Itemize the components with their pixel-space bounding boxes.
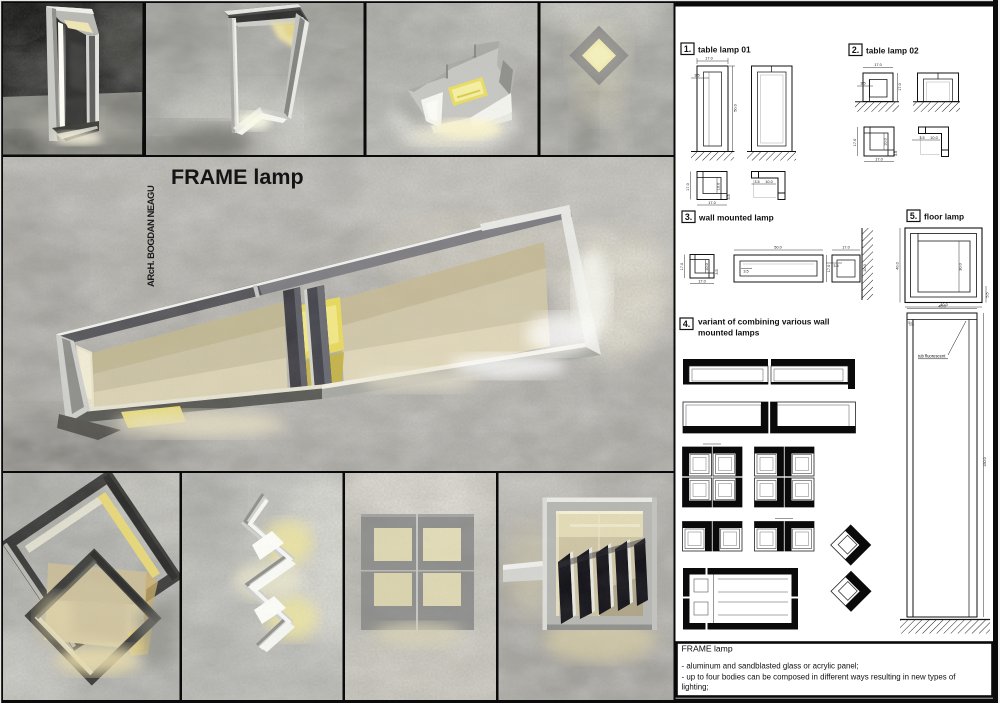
svg-text:3.5: 3.5 <box>754 180 759 184</box>
svg-text:FRAME lamp: FRAME lamp <box>171 165 304 189</box>
svg-text:10.0: 10.0 <box>765 180 772 184</box>
svg-text:10.0: 10.0 <box>884 138 888 145</box>
svg-text:5.: 5. <box>910 211 917 221</box>
svg-text:5.5: 5.5 <box>986 292 990 297</box>
svg-text:10.0: 10.0 <box>705 263 709 270</box>
svg-text:30.0: 30.0 <box>959 263 963 270</box>
svg-text:17.0: 17.0 <box>898 83 902 90</box>
svg-text:table lamp 01: table lamp 01 <box>698 44 751 54</box>
svg-text:3.5: 3.5 <box>833 264 838 268</box>
svg-text:floor lamp: floor lamp <box>924 211 964 221</box>
svg-text:17.0: 17.0 <box>698 280 705 284</box>
svg-text:mounted lamps: mounted lamps <box>698 328 760 338</box>
svg-text:ARcH. BOGDAN NEAGU: ARcH. BOGDAN NEAGU <box>146 185 157 287</box>
svg-text:3.5: 3.5 <box>727 194 731 199</box>
svg-text:50.0: 50.0 <box>774 246 781 250</box>
svg-text:3.: 3. <box>685 212 692 222</box>
svg-text:4.: 4. <box>683 319 690 329</box>
svg-text:50.0: 50.0 <box>734 104 738 111</box>
svg-text:17.0: 17.0 <box>827 265 831 272</box>
svg-text:3.5: 3.5 <box>694 74 699 78</box>
svg-text:3.5: 3.5 <box>919 136 924 140</box>
svg-text:10.0: 10.0 <box>930 136 937 140</box>
svg-text:2.: 2. <box>852 45 859 55</box>
svg-text:wall mounted lamp: wall mounted lamp <box>698 212 774 222</box>
svg-text:17.0: 17.0 <box>708 201 715 205</box>
svg-text:1.: 1. <box>684 44 691 54</box>
svg-text:17.0: 17.0 <box>705 57 712 61</box>
svg-text:17.0: 17.0 <box>853 139 857 146</box>
svg-text:40.0: 40.0 <box>896 262 900 269</box>
svg-text:table lamp 02: table lamp 02 <box>866 45 919 55</box>
svg-text:3.5: 3.5 <box>860 82 865 86</box>
svg-text:FRAME lamp: FRAME lamp <box>682 644 733 654</box>
svg-text:- up to four bodies can be com: - up to four bodies can be composed in d… <box>682 673 957 682</box>
svg-text:17.0: 17.0 <box>874 63 881 67</box>
svg-text:17.0: 17.0 <box>686 183 690 190</box>
svg-text:150.0: 150.0 <box>983 457 987 467</box>
svg-text:40.0: 40.0 <box>938 305 945 309</box>
svg-text:variant of combining various w: variant of combining various wall <box>698 317 829 327</box>
svg-text:17.0: 17.0 <box>680 263 684 270</box>
svg-text:3.5: 3.5 <box>715 269 719 274</box>
svg-text:5.0: 5.0 <box>908 321 913 325</box>
svg-text:3.5: 3.5 <box>743 270 748 274</box>
svg-text:3.5: 3.5 <box>894 151 898 156</box>
svg-text:tub fluorescent: tub fluorescent <box>918 354 946 359</box>
svg-text:lighting;: lighting; <box>682 683 709 692</box>
svg-text:17.0: 17.0 <box>842 246 849 250</box>
svg-text:- aluminum and sandblasted gla: - aluminum and sandblasted glass or acry… <box>682 662 859 671</box>
svg-text:10.0: 10.0 <box>717 183 721 190</box>
svg-text:10.0: 10.0 <box>863 264 867 271</box>
svg-text:17.0: 17.0 <box>875 158 882 162</box>
